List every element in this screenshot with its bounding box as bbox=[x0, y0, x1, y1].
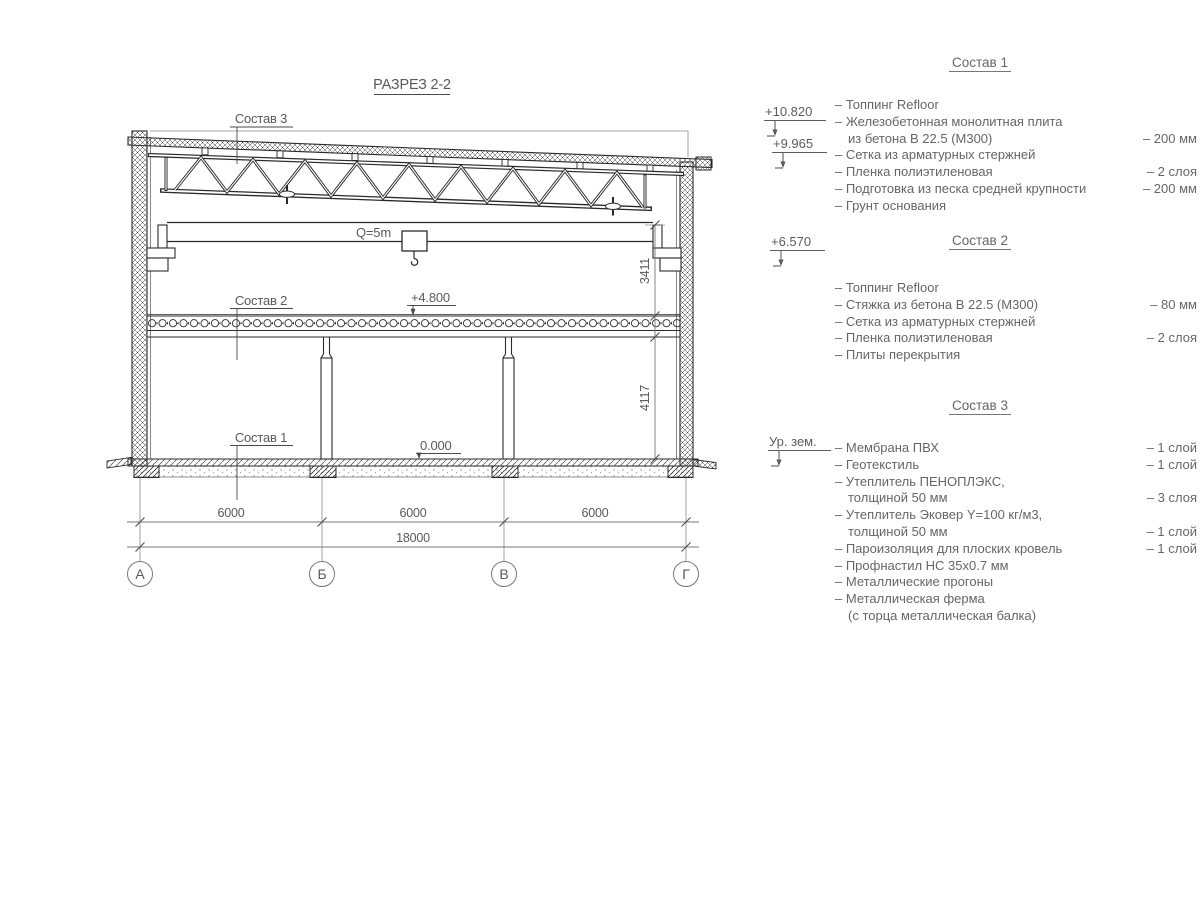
list-item: – Топпинг Refloor bbox=[835, 97, 1197, 114]
crane-capacity-label: Q=5m bbox=[356, 225, 391, 240]
dim-span-vg: 6000 bbox=[581, 506, 608, 520]
item-text: толщиной 50 мм bbox=[835, 524, 948, 541]
list-item: (с торца металлическая балка) bbox=[835, 608, 1197, 625]
legend-section-2-title-text: Состав 2 bbox=[949, 233, 1011, 250]
item-text: – Металлическая ферма bbox=[835, 591, 985, 608]
list-item: из бетона В 22.5 (М300)– 200 мм bbox=[835, 131, 1197, 148]
axis-bubbles: А Б В Г bbox=[128, 562, 699, 587]
dim-span-bv: 6000 bbox=[399, 506, 426, 520]
list-item: – Пароизоляция для плоских кровель– 1 сл… bbox=[835, 541, 1197, 558]
item-text: – Утеплитель ПЕНОПЛЭКС, bbox=[835, 474, 1005, 491]
axis-g: Г bbox=[682, 566, 690, 582]
elevation-4800: +4.800 bbox=[411, 290, 450, 305]
elevation-arrow-icon bbox=[770, 451, 788, 468]
item-value: – 3 слоя bbox=[1147, 490, 1197, 507]
legend-section-1-title-text: Состав 1 bbox=[949, 55, 1011, 72]
list-item: – Сетка из арматурных стержней bbox=[835, 147, 1197, 164]
item-text: толщиной 50 мм bbox=[835, 490, 948, 507]
item-text: – Грунт основания bbox=[835, 198, 946, 215]
list-item: – Утеплитель ПЕНОПЛЭКС, bbox=[835, 474, 1197, 491]
dim-total: 18000 bbox=[396, 531, 430, 545]
item-value: – 1 слой bbox=[1147, 524, 1197, 541]
legend-section-3-title-text: Состав 3 bbox=[949, 398, 1011, 415]
crane-bridge: Q=5m bbox=[147, 223, 681, 272]
item-value: – 200 мм bbox=[1143, 181, 1197, 198]
drawing-title-text: РАЗРЕЗ 2-2 bbox=[373, 77, 451, 93]
elevation-mark-10820: +10.820 bbox=[764, 104, 826, 138]
item-text: – Железобетонная монолитная плита bbox=[835, 114, 1063, 131]
item-text: – Сетка из арматурных стержней bbox=[835, 314, 1035, 331]
ground-slab bbox=[107, 458, 716, 478]
column-v bbox=[503, 337, 514, 459]
legend-section-3-title: Состав 3 bbox=[760, 398, 1200, 413]
sheet: РАЗРЕЗ 2-2 bbox=[0, 0, 1200, 900]
elevation-mark-6570: +6.570 bbox=[770, 234, 825, 268]
column-b bbox=[321, 337, 332, 459]
elevation-mark-9965: +9.965 bbox=[772, 136, 827, 170]
list-item: – Плиты перекрытия bbox=[835, 347, 1197, 364]
legend-section-2-title: Состав 2 bbox=[760, 233, 1200, 248]
list-item: – Грунт основания bbox=[835, 198, 1197, 215]
axis-v: В bbox=[499, 566, 508, 582]
item-value: – 1 слой bbox=[1147, 457, 1197, 474]
item-text: – Пленка полиэтиленовая bbox=[835, 330, 993, 347]
item-value: – 80 мм bbox=[1150, 297, 1197, 314]
list-item: толщиной 50 мм– 3 слоя bbox=[835, 490, 1197, 507]
elevation-arrow-icon bbox=[772, 251, 790, 268]
list-item: – Металлическая ферма bbox=[835, 591, 1197, 608]
materials-legend: Состав 1 – Топпинг Refloor – Железобетон… bbox=[760, 0, 1200, 900]
item-text: – Утеплитель Эковер Y=100 кг/м3, bbox=[835, 507, 1042, 524]
item-text: – Плиты перекрытия bbox=[835, 347, 960, 364]
item-value: – 2 слоя bbox=[1147, 330, 1197, 347]
item-text: – Пароизоляция для плоских кровель bbox=[835, 541, 1062, 558]
elevation-label: +9.965 bbox=[772, 136, 827, 153]
list-item: – Геотекстиль– 1 слой bbox=[835, 457, 1197, 474]
item-text: из бетона В 22.5 (М300) bbox=[835, 131, 992, 148]
list-item: – Пленка полиэтиленовая– 2 слоя bbox=[835, 330, 1197, 347]
axis-a: А bbox=[135, 566, 145, 582]
horizontal-dimensions: 6000 6000 6000 18000 bbox=[127, 506, 699, 552]
elevation-label: Ур. зем. bbox=[768, 434, 831, 451]
list-item: – Подготовка из песка средней крупности–… bbox=[835, 181, 1197, 198]
list-item: – Мембрана ПВХ– 1 слой bbox=[835, 440, 1197, 457]
floor-slab bbox=[147, 315, 680, 338]
item-text: – Геотекстиль bbox=[835, 457, 919, 474]
elevation-0000: 0.000 bbox=[420, 438, 452, 453]
elevation-arrow-icon bbox=[774, 153, 792, 170]
item-text: – Топпинг Refloor bbox=[835, 97, 939, 114]
list-item: – Топпинг Refloor bbox=[835, 280, 1197, 297]
item-text: – Профнастил НС 35х0.7 мм bbox=[835, 558, 1009, 575]
list-item: – Металлические прогоны bbox=[835, 574, 1197, 591]
item-text: – Стяжка из бетона В 22.5 (М300) bbox=[835, 297, 1038, 314]
list-item: толщиной 50 мм– 1 слой bbox=[835, 524, 1197, 541]
item-text: – Мембрана ПВХ bbox=[835, 440, 939, 457]
elevation-mark-ground-level: Ур. зем. bbox=[768, 434, 831, 468]
label-sostav-1: Состав 1 bbox=[235, 430, 287, 445]
list-item: – Профнастил НС 35х0.7 мм bbox=[835, 558, 1197, 575]
dim-height-lower: 4117 bbox=[638, 385, 652, 411]
item-value: – 2 слоя bbox=[1147, 164, 1197, 181]
list-item: – Сетка из арматурных стержней bbox=[835, 314, 1197, 331]
legend-section-3-items: – Мембрана ПВХ– 1 слой – Геотекстиль– 1 … bbox=[835, 440, 1197, 625]
label-sostav-2: Состав 2 bbox=[235, 293, 287, 308]
item-value: – 200 мм bbox=[1143, 131, 1197, 148]
label-sostav-3: Состав 3 bbox=[235, 111, 287, 126]
legend-section-2-items: – Топпинг Refloor – Стяжка из бетона В 2… bbox=[835, 280, 1197, 364]
list-item: – Стяжка из бетона В 22.5 (М300)– 80 мм bbox=[835, 297, 1197, 314]
dim-span-ab: 6000 bbox=[217, 506, 244, 520]
axis-b: Б bbox=[318, 566, 327, 582]
list-item: – Пленка полиэтиленовая– 2 слоя bbox=[835, 164, 1197, 181]
drawing-title: РАЗРЕЗ 2-2 bbox=[373, 77, 451, 95]
crane-trolley bbox=[402, 231, 427, 265]
elevation-label: +10.820 bbox=[764, 104, 826, 121]
legend-section-1-title: Состав 1 bbox=[760, 55, 1200, 70]
legend-section-1-items: – Топпинг Refloor – Железобетонная монол… bbox=[835, 97, 1197, 215]
item-text: – Пленка полиэтиленовая bbox=[835, 164, 993, 181]
elevation-label: +6.570 bbox=[770, 234, 825, 251]
drawing-elevations: +4.800 0.000 bbox=[407, 290, 461, 459]
dim-height-upper: 3411 bbox=[638, 258, 652, 284]
item-text: – Сетка из арматурных стержней bbox=[835, 147, 1035, 164]
item-value: – 1 слой bbox=[1147, 440, 1197, 457]
list-item: – Железобетонная монолитная плита bbox=[835, 114, 1197, 131]
item-value: – 1 слой bbox=[1147, 541, 1197, 558]
item-text: – Подготовка из песка средней крупности bbox=[835, 181, 1086, 198]
item-text: – Топпинг Refloor bbox=[835, 280, 939, 297]
item-text: – Металлические прогоны bbox=[835, 574, 993, 591]
item-text: (с торца металлическая балка) bbox=[835, 608, 1036, 625]
columns bbox=[321, 337, 514, 459]
list-item: – Утеплитель Эковер Y=100 кг/м3, bbox=[835, 507, 1197, 524]
